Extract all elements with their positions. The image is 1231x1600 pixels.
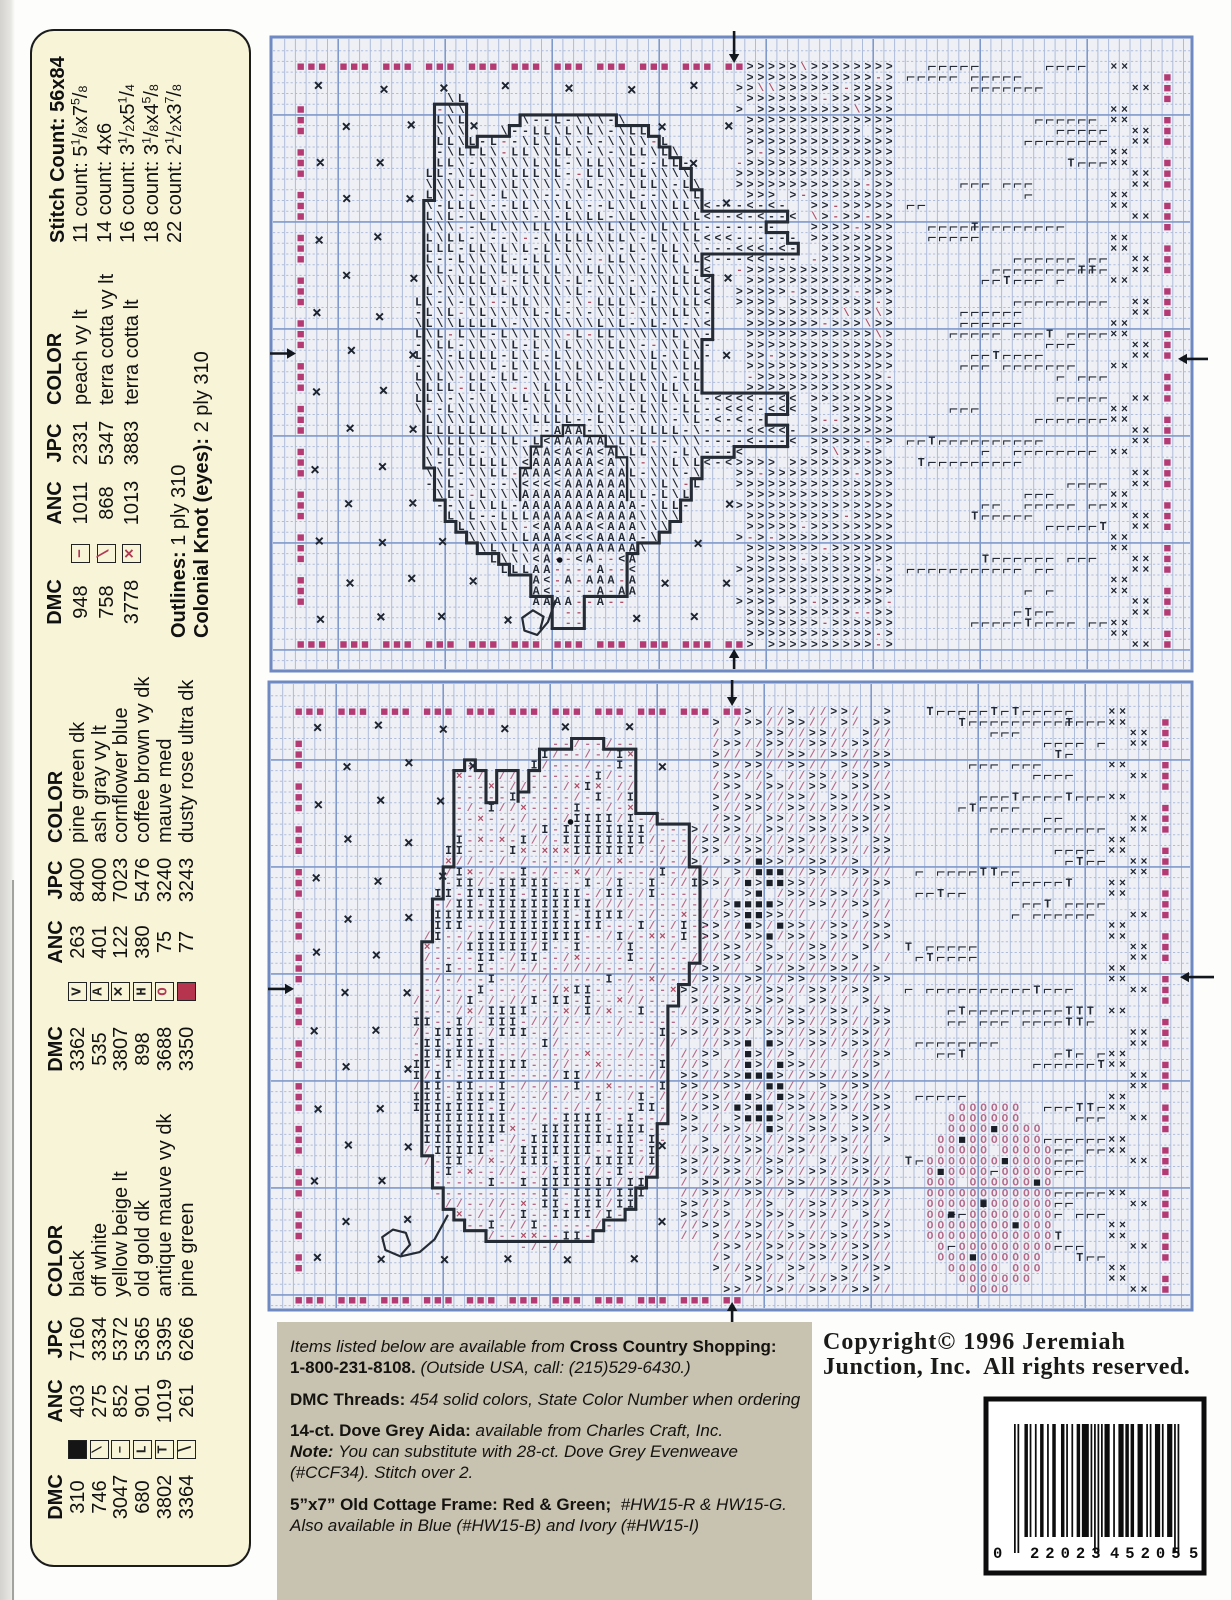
svg-text:5: 5 (1189, 1545, 1198, 1563)
svg-text:22023: 22023 (1030, 1545, 1107, 1563)
svg-text:0: 0 (993, 1545, 1002, 1563)
svg-text:45205: 45205 (1110, 1545, 1187, 1563)
